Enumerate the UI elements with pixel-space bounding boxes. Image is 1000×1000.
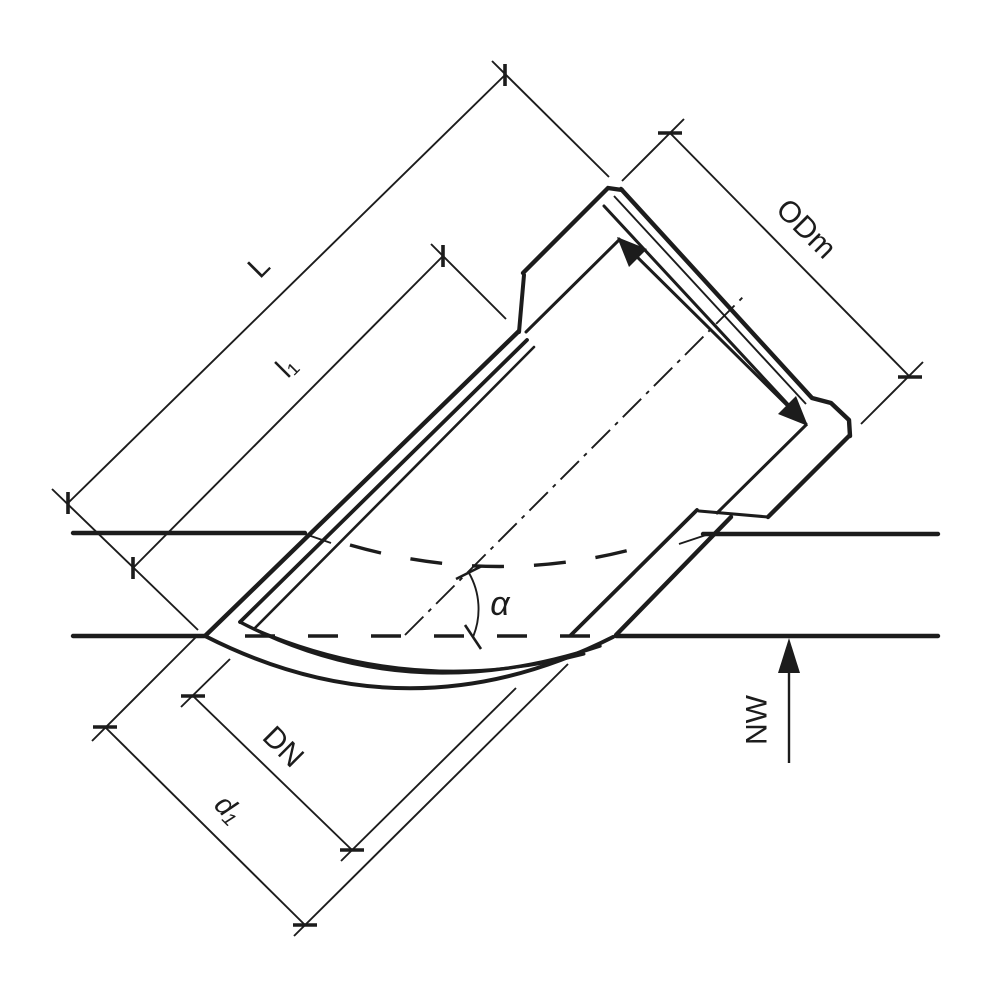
alpha-angle-arc xyxy=(469,573,479,637)
socket-outer-wall-right xyxy=(768,436,849,517)
flow-direction-label: NW xyxy=(741,694,774,745)
dimension-L-label: L xyxy=(241,249,276,284)
dimension-d1-label: d₁ xyxy=(208,789,249,830)
branch-axis-centerline xyxy=(405,295,745,635)
alpha-arc-tick-top xyxy=(456,566,482,579)
branch-inner-wall-left-outer-edge xyxy=(240,340,527,622)
dimension-d1-extension-bottom xyxy=(294,664,568,936)
dimension-L-line xyxy=(68,75,505,503)
branch-outer-wall-left xyxy=(205,331,519,636)
dimension-ODm-extension-bottom xyxy=(861,362,923,424)
socket-shoulder-right xyxy=(699,511,768,517)
dimension-l1-line xyxy=(133,256,443,568)
dimension-DN-extension-top xyxy=(181,659,230,707)
hidden-saddle-back-curve xyxy=(350,545,648,567)
dimension-l1-extension-top xyxy=(431,244,506,319)
dimension-ODm-label: ODm xyxy=(770,193,843,266)
socket-mouth-chamfer-line xyxy=(614,196,806,404)
socket-shoulder-left xyxy=(519,275,524,332)
dimension-L: L xyxy=(52,61,609,630)
flow-arrow: NW xyxy=(741,638,801,763)
drawing-canvas: α L l₁ ODm DN xyxy=(0,0,1000,1000)
alpha-label: α xyxy=(490,585,511,623)
socket-mouth-inner-edge-line xyxy=(604,206,797,414)
dimension-l1-label: l₁ xyxy=(270,350,304,384)
centerline xyxy=(405,295,745,635)
dimension-L-l1-shared-extension xyxy=(52,489,198,630)
technical-drawing: α L l₁ ODm DN xyxy=(0,0,1000,1000)
socket-bore-arrow xyxy=(617,237,808,426)
flow-arrowhead xyxy=(778,638,800,673)
dimension-DN-line xyxy=(193,696,352,850)
socket-inner-wall-right xyxy=(717,425,806,513)
main-pipe-right-fillet xyxy=(679,535,706,544)
dimension-l1: l₁ xyxy=(133,244,506,579)
dimension-DN-extension-bottom xyxy=(341,688,516,861)
dimension-ODm: ODm xyxy=(622,119,923,424)
socket-bore-arrow-shaft xyxy=(619,239,806,424)
dimension-L-extension-top xyxy=(492,61,609,177)
dimension-ODm-extension-top xyxy=(622,119,684,181)
dimension-ODm-line xyxy=(670,133,910,377)
alpha-arc-tick-bottom xyxy=(465,625,481,649)
socket-outer-wall-left xyxy=(523,188,622,273)
dimension-DN: DN xyxy=(181,659,516,861)
